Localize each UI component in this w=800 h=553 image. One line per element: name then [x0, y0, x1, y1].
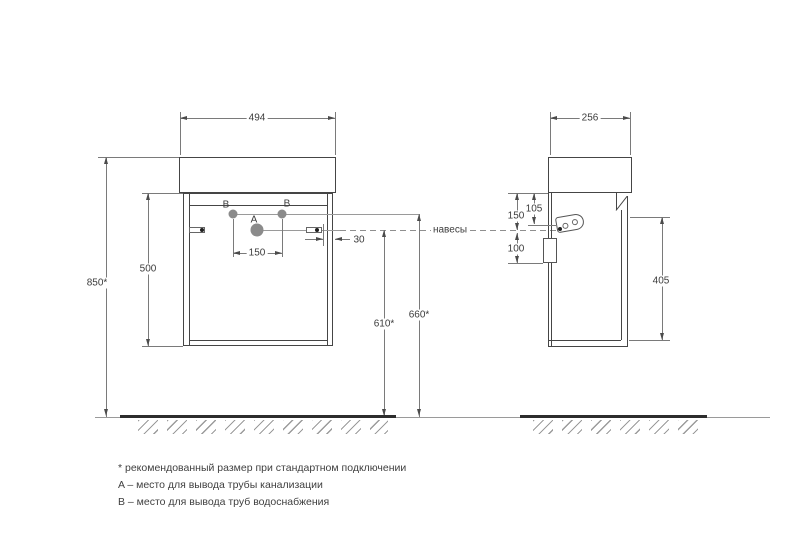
hanger-right-dot [315, 228, 319, 232]
side-back-edge [548, 193, 549, 346]
arrowhead [532, 193, 536, 200]
floor-hatching-right [533, 420, 699, 434]
dim-water-height-label: 660* [407, 310, 432, 321]
arrowhead [233, 251, 240, 255]
arrowhead [335, 237, 342, 241]
arrowhead [104, 409, 108, 416]
arrowhead [146, 339, 150, 346]
ext-line [630, 217, 670, 218]
dim-door-height-label: 405 [651, 276, 672, 287]
water-hole-right-label: B [282, 199, 293, 210]
ext-line [323, 224, 324, 246]
dim-drain-height-label: 610* [372, 319, 397, 330]
hangers-label: навесы [431, 225, 469, 236]
bracket-hole [562, 222, 569, 229]
footnote-drain-outlet: A – место для вывода трубы канализации [118, 477, 406, 494]
side-back-inner-line [551, 193, 552, 346]
dim-depth-label: 256 [580, 113, 601, 124]
ext-line [630, 112, 631, 155]
dim-mounting-height-label: 850* [85, 278, 110, 289]
side-front-edge [627, 196, 628, 346]
arrowhead [660, 217, 664, 224]
side-bottom-panel-line [548, 340, 621, 341]
front-right-panel-line [327, 193, 328, 346]
ext-line [142, 346, 183, 347]
ext-line [335, 112, 336, 155]
technical-drawing: навесы B B A 494 500 [0, 0, 800, 553]
water-hole-right [278, 210, 287, 219]
side-sink-top [548, 157, 632, 193]
arrowhead [532, 217, 536, 224]
ext-line [528, 225, 556, 226]
dim-front-width-label: 494 [247, 113, 268, 124]
ext-line [629, 340, 670, 341]
footnote-water-outlet: B – место для вывода труб водоснабжения [118, 494, 406, 511]
floor-hatching-left [138, 420, 388, 434]
arrowhead [180, 116, 187, 120]
dim-faucet-spacing-label: 150 [247, 248, 268, 259]
ext-line [98, 157, 179, 158]
floor-line-left [120, 415, 396, 418]
hanger-right [306, 227, 322, 233]
water-hole-left [229, 210, 238, 219]
side-handle-chamfer [616, 196, 628, 211]
back-panel-cutout [543, 238, 557, 263]
arrowhead [660, 333, 664, 340]
dim-cabinet-height-label: 500 [138, 264, 159, 275]
ext-line [282, 219, 283, 257]
arrowhead [104, 157, 108, 164]
arrowhead [515, 223, 519, 230]
arrowhead [275, 251, 282, 255]
arrowhead [550, 116, 557, 120]
front-sink-top [179, 157, 336, 193]
floor-line-right [520, 415, 707, 418]
front-top-rail-line [189, 205, 327, 206]
drain-hole-label: A [249, 215, 260, 226]
front-bottom-panel-line [189, 340, 327, 341]
arrowhead [328, 116, 335, 120]
ext-line [508, 263, 543, 264]
arrowhead [515, 233, 519, 240]
arrowhead [515, 256, 519, 263]
arrowhead [417, 409, 421, 416]
water-level-line [233, 214, 419, 215]
dim-cutout-height-label: 100 [506, 244, 527, 255]
dim-bracket-hole-offset-label: 105 [524, 204, 545, 215]
footnotes: * рекомендованный размер при стандартном… [118, 460, 406, 511]
hanger-left-dot [200, 228, 204, 232]
dim-bracket-axis-offset-label: 150 [506, 211, 527, 222]
bracket-hole [571, 219, 578, 226]
ext-line [508, 193, 548, 194]
water-hole-left-label: B [221, 200, 232, 211]
arrowhead [382, 230, 386, 237]
side-front-inner-line [621, 210, 622, 340]
dim-hanger-offset-label: 30 [351, 235, 366, 246]
side-bottom-edge [548, 346, 628, 347]
arrowhead [146, 193, 150, 200]
arrowhead [515, 193, 519, 200]
arrowhead [417, 214, 421, 221]
footnote-recommended-size: * рекомендованный размер при стандартном… [118, 460, 406, 477]
arrowhead [316, 237, 323, 241]
drain-level-line [257, 230, 340, 231]
arrowhead [623, 116, 630, 120]
front-left-panel-line [189, 193, 190, 346]
bracket-dot [558, 227, 562, 231]
